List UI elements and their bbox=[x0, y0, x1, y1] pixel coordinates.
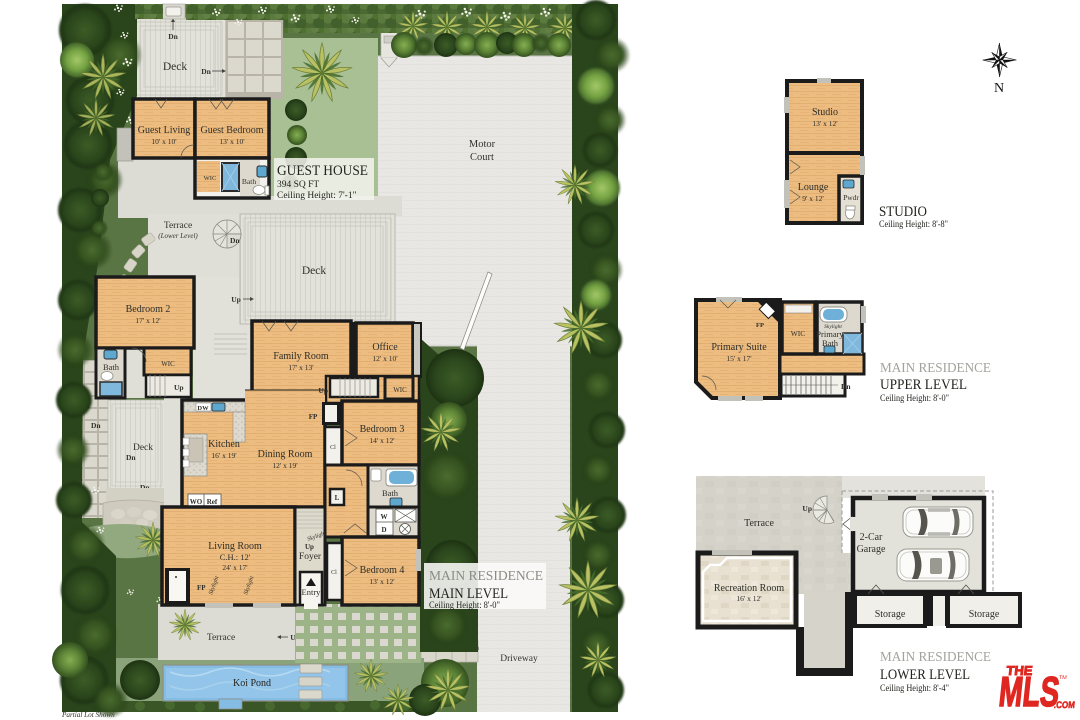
svg-text:Dn: Dn bbox=[168, 32, 178, 41]
svg-text:Bedroom 4: Bedroom 4 bbox=[360, 565, 405, 576]
svg-text:Living Room: Living Room bbox=[208, 541, 262, 552]
svg-text:14' x 12': 14' x 12' bbox=[369, 436, 395, 445]
svg-text:Dn: Dn bbox=[230, 236, 240, 245]
svg-text:MAIN RESIDENCE: MAIN RESIDENCE bbox=[880, 650, 991, 665]
svg-text:24' x 17': 24' x 17' bbox=[222, 563, 248, 572]
svg-text:UPPER LEVEL: UPPER LEVEL bbox=[880, 377, 967, 393]
svg-text:WO: WO bbox=[190, 498, 203, 506]
svg-text:Ceiling Height: 8'-8": Ceiling Height: 8'-8" bbox=[879, 220, 948, 230]
svg-text:MAIN RESIDENCE: MAIN RESIDENCE bbox=[429, 569, 543, 584]
svg-text:Entry: Entry bbox=[302, 587, 322, 597]
svg-text:17' x 12': 17' x 12' bbox=[135, 316, 161, 325]
svg-text:LOWER LEVEL: LOWER LEVEL bbox=[880, 667, 970, 683]
svg-text:Terrace: Terrace bbox=[744, 518, 774, 529]
svg-text:13' x 10': 13' x 10' bbox=[219, 137, 245, 146]
svg-text:WIC: WIC bbox=[791, 329, 806, 338]
svg-text:394 SQ FT: 394 SQ FT bbox=[277, 180, 319, 190]
svg-text:Primary Suite: Primary Suite bbox=[711, 342, 767, 353]
svg-text:Up: Up bbox=[802, 504, 812, 513]
svg-text:16' x 19': 16' x 19' bbox=[211, 451, 237, 460]
svg-text:Deck: Deck bbox=[133, 443, 153, 453]
svg-text:Ref: Ref bbox=[207, 498, 218, 506]
svg-text:2-Car: 2-Car bbox=[860, 532, 883, 543]
svg-text:Up: Up bbox=[174, 383, 184, 392]
svg-text:Driveway: Driveway bbox=[500, 654, 538, 664]
svg-text:Bath: Bath bbox=[242, 177, 256, 186]
svg-text:TM: TM bbox=[1058, 675, 1067, 681]
svg-text:10' x 10': 10' x 10' bbox=[151, 137, 177, 146]
svg-text:Dn: Dn bbox=[201, 67, 211, 76]
svg-text:12' x 10': 12' x 10' bbox=[372, 354, 398, 363]
svg-text:Ceiling Height: 8'-4": Ceiling Height: 8'-4" bbox=[880, 684, 949, 694]
svg-text:MAIN RESIDENCE: MAIN RESIDENCE bbox=[880, 361, 991, 376]
svg-text:L: L bbox=[335, 494, 340, 502]
svg-text:Guest Living: Guest Living bbox=[138, 125, 191, 136]
svg-text:Pwdr: Pwdr bbox=[843, 193, 859, 202]
svg-text:Dining Room: Dining Room bbox=[258, 449, 313, 460]
svg-text:Motor: Motor bbox=[469, 139, 496, 150]
svg-text:Storage: Storage bbox=[875, 609, 906, 620]
svg-text:16' x 12': 16' x 12' bbox=[736, 594, 762, 603]
svg-text:WIC: WIC bbox=[393, 386, 407, 394]
svg-text:.COM: .COM bbox=[1053, 700, 1075, 711]
svg-text:Foyer: Foyer bbox=[299, 552, 322, 562]
svg-text:Court: Court bbox=[470, 152, 494, 163]
svg-text:17' x 13': 17' x 13' bbox=[288, 363, 314, 372]
svg-text:D: D bbox=[381, 526, 386, 534]
svg-text:Family Room: Family Room bbox=[273, 351, 329, 362]
svg-text:FP: FP bbox=[197, 584, 206, 592]
svg-text:Dn: Dn bbox=[841, 382, 851, 391]
svg-text:Ceiling Height: 7'-1": Ceiling Height: 7'-1" bbox=[277, 191, 357, 201]
svg-text:Koi Pond: Koi Pond bbox=[233, 678, 271, 689]
svg-text:13' x 12': 13' x 12' bbox=[369, 577, 395, 586]
svg-text:(Lower Level): (Lower Level) bbox=[158, 232, 198, 240]
svg-text:WIC: WIC bbox=[161, 360, 175, 368]
svg-text:Deck: Deck bbox=[302, 265, 327, 277]
svg-text:Terrace: Terrace bbox=[164, 221, 192, 231]
svg-text:Dn: Dn bbox=[126, 453, 136, 462]
svg-text:Up: Up bbox=[305, 543, 314, 551]
svg-text:DW: DW bbox=[197, 405, 209, 412]
svg-text:Up: Up bbox=[231, 295, 241, 304]
svg-text:12' x 19': 12' x 19' bbox=[272, 461, 298, 470]
svg-text:Storage: Storage bbox=[969, 609, 1000, 620]
svg-text:MLS: MLS bbox=[997, 668, 1062, 715]
svg-text:FP: FP bbox=[309, 413, 318, 421]
svg-text:W: W bbox=[381, 513, 388, 521]
svg-text:FP: FP bbox=[756, 322, 764, 329]
svg-text:N: N bbox=[994, 81, 1004, 96]
svg-text:Cl: Cl bbox=[330, 445, 336, 451]
svg-text:15' x 17': 15' x 17' bbox=[726, 354, 752, 363]
svg-text:Up: Up bbox=[318, 386, 328, 395]
svg-text:Office: Office bbox=[372, 342, 398, 353]
svg-text:Partial Lot Shown: Partial Lot Shown bbox=[61, 711, 115, 719]
svg-text:Guest Bedroom: Guest Bedroom bbox=[200, 125, 263, 136]
svg-text:Terrace: Terrace bbox=[207, 633, 235, 643]
svg-text:Bath: Bath bbox=[822, 338, 839, 348]
svg-text:C.H.: 12': C.H.: 12' bbox=[220, 552, 251, 562]
svg-text:Bath: Bath bbox=[103, 362, 120, 372]
svg-text:9' x 12': 9' x 12' bbox=[802, 194, 824, 203]
svg-text:WIC: WIC bbox=[204, 175, 217, 182]
svg-text:13' x 12': 13' x 12' bbox=[812, 119, 838, 128]
svg-text:Dn: Dn bbox=[91, 421, 101, 430]
svg-text:GUEST HOUSE: GUEST HOUSE bbox=[277, 163, 368, 179]
svg-text:Bedroom 2: Bedroom 2 bbox=[126, 304, 171, 315]
svg-text:Bath: Bath bbox=[382, 488, 399, 498]
svg-text:Lounge: Lounge bbox=[798, 182, 829, 193]
svg-text:Studio: Studio bbox=[812, 107, 838, 118]
svg-text:Ceiling Height: 8'-0": Ceiling Height: 8'-0" bbox=[880, 394, 949, 404]
svg-text:Kitchen: Kitchen bbox=[208, 439, 240, 450]
svg-text:Bedroom 3: Bedroom 3 bbox=[360, 424, 405, 435]
svg-text:STUDIO: STUDIO bbox=[879, 204, 927, 220]
svg-text:Deck: Deck bbox=[163, 61, 188, 73]
svg-text:Cl: Cl bbox=[331, 570, 337, 576]
svg-text:Garage: Garage bbox=[857, 544, 886, 555]
svg-text:Ceiling Height: 8'-0": Ceiling Height: 8'-0" bbox=[429, 600, 500, 610]
svg-text:Recreation Room: Recreation Room bbox=[714, 583, 784, 594]
